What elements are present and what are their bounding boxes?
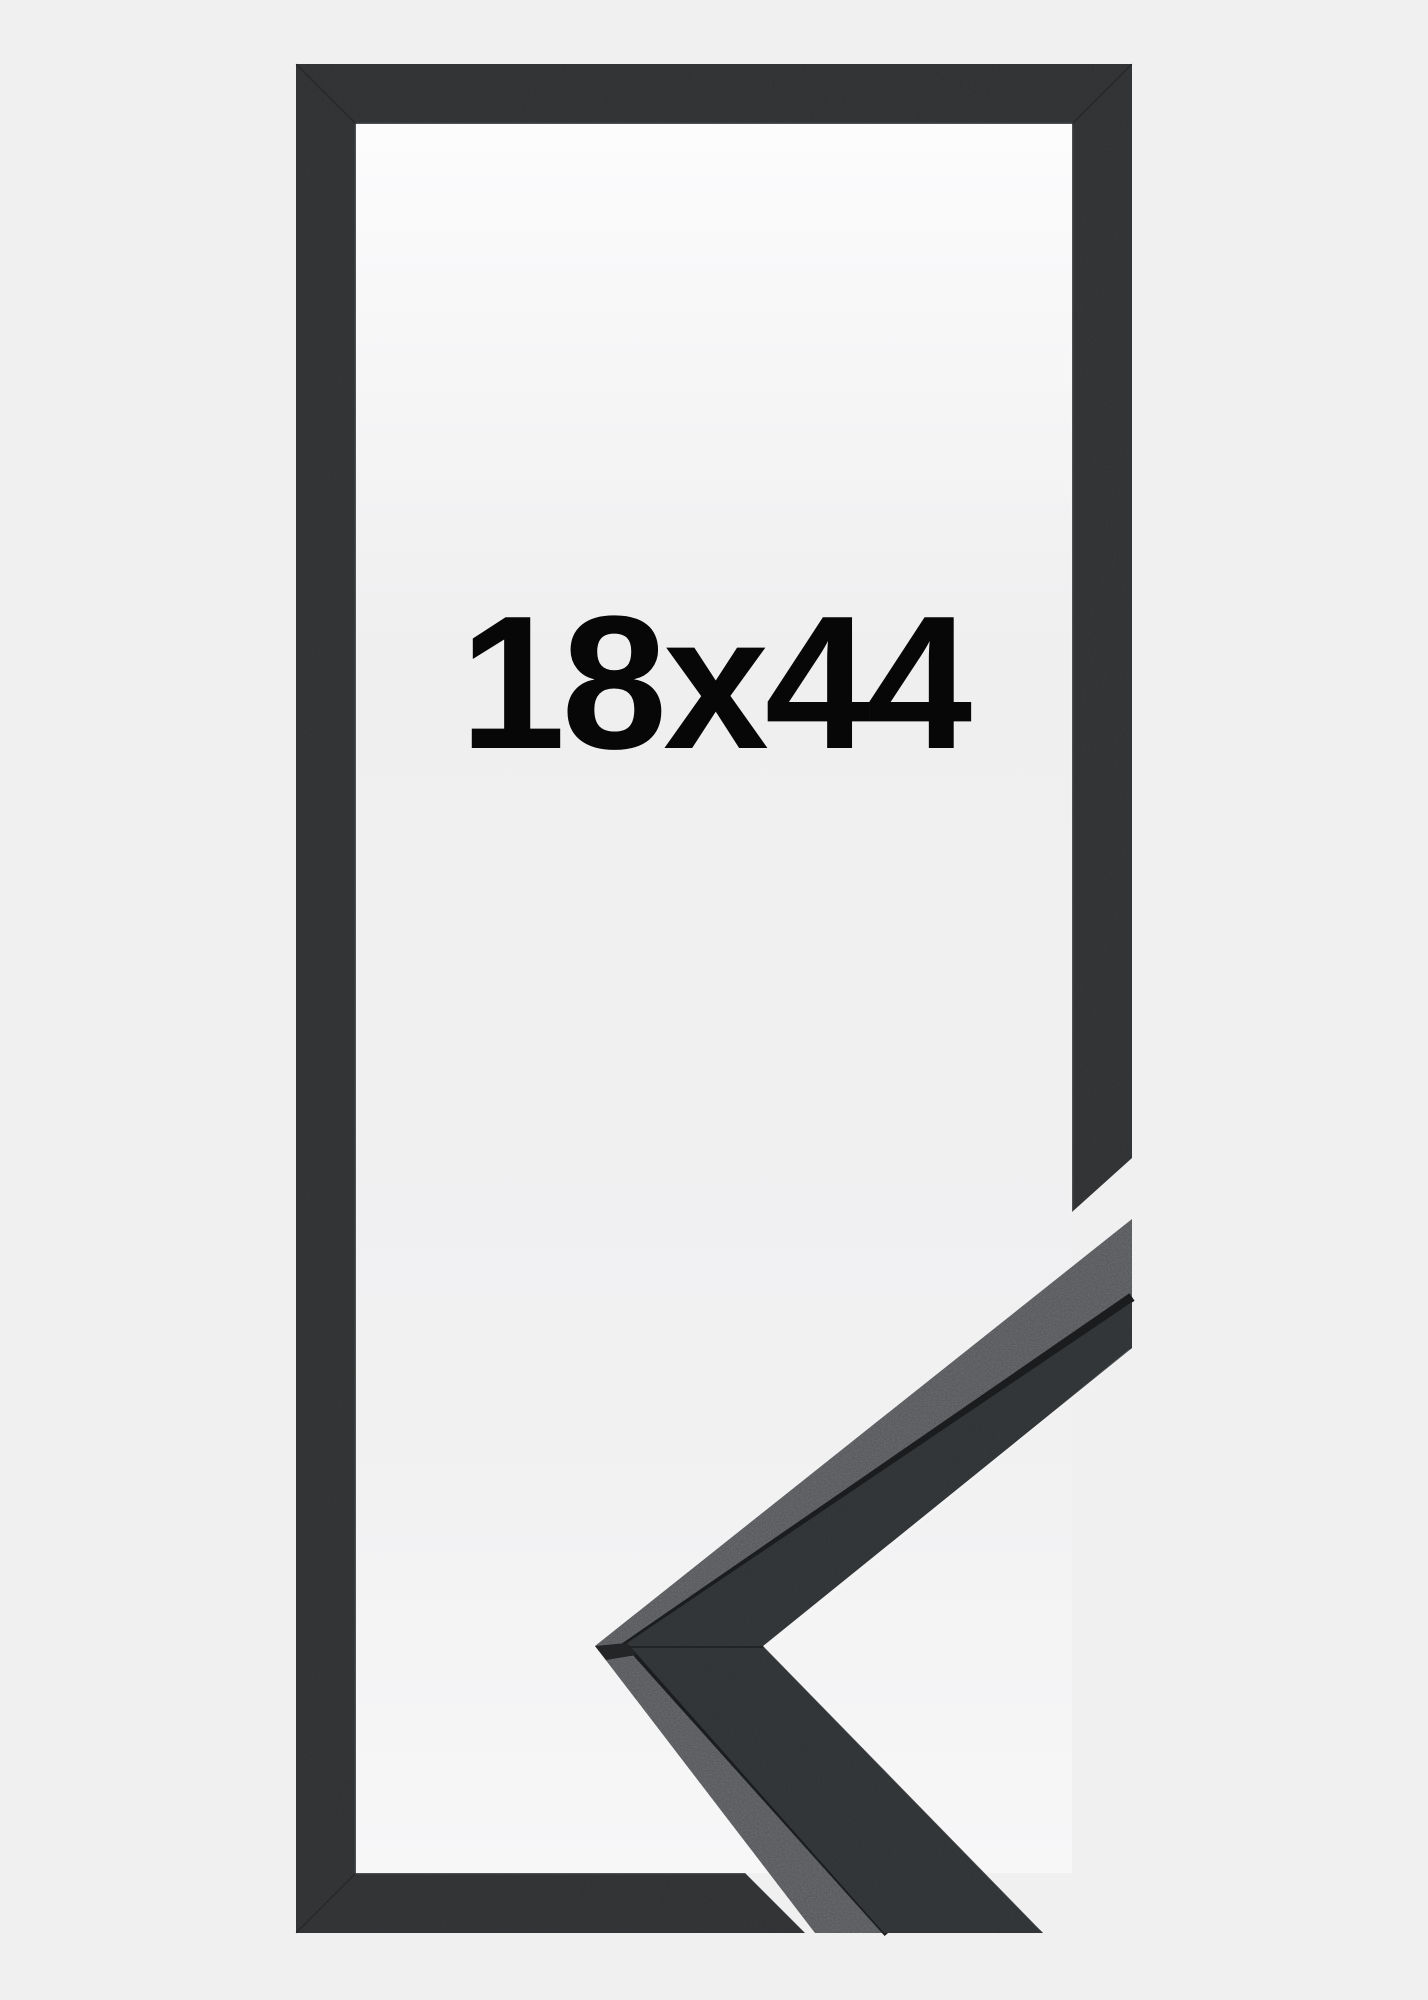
product-image: 18x44 (0, 0, 1428, 2000)
size-label: 18x44 (356, 588, 1072, 778)
frame-illustration (0, 0, 1428, 2000)
